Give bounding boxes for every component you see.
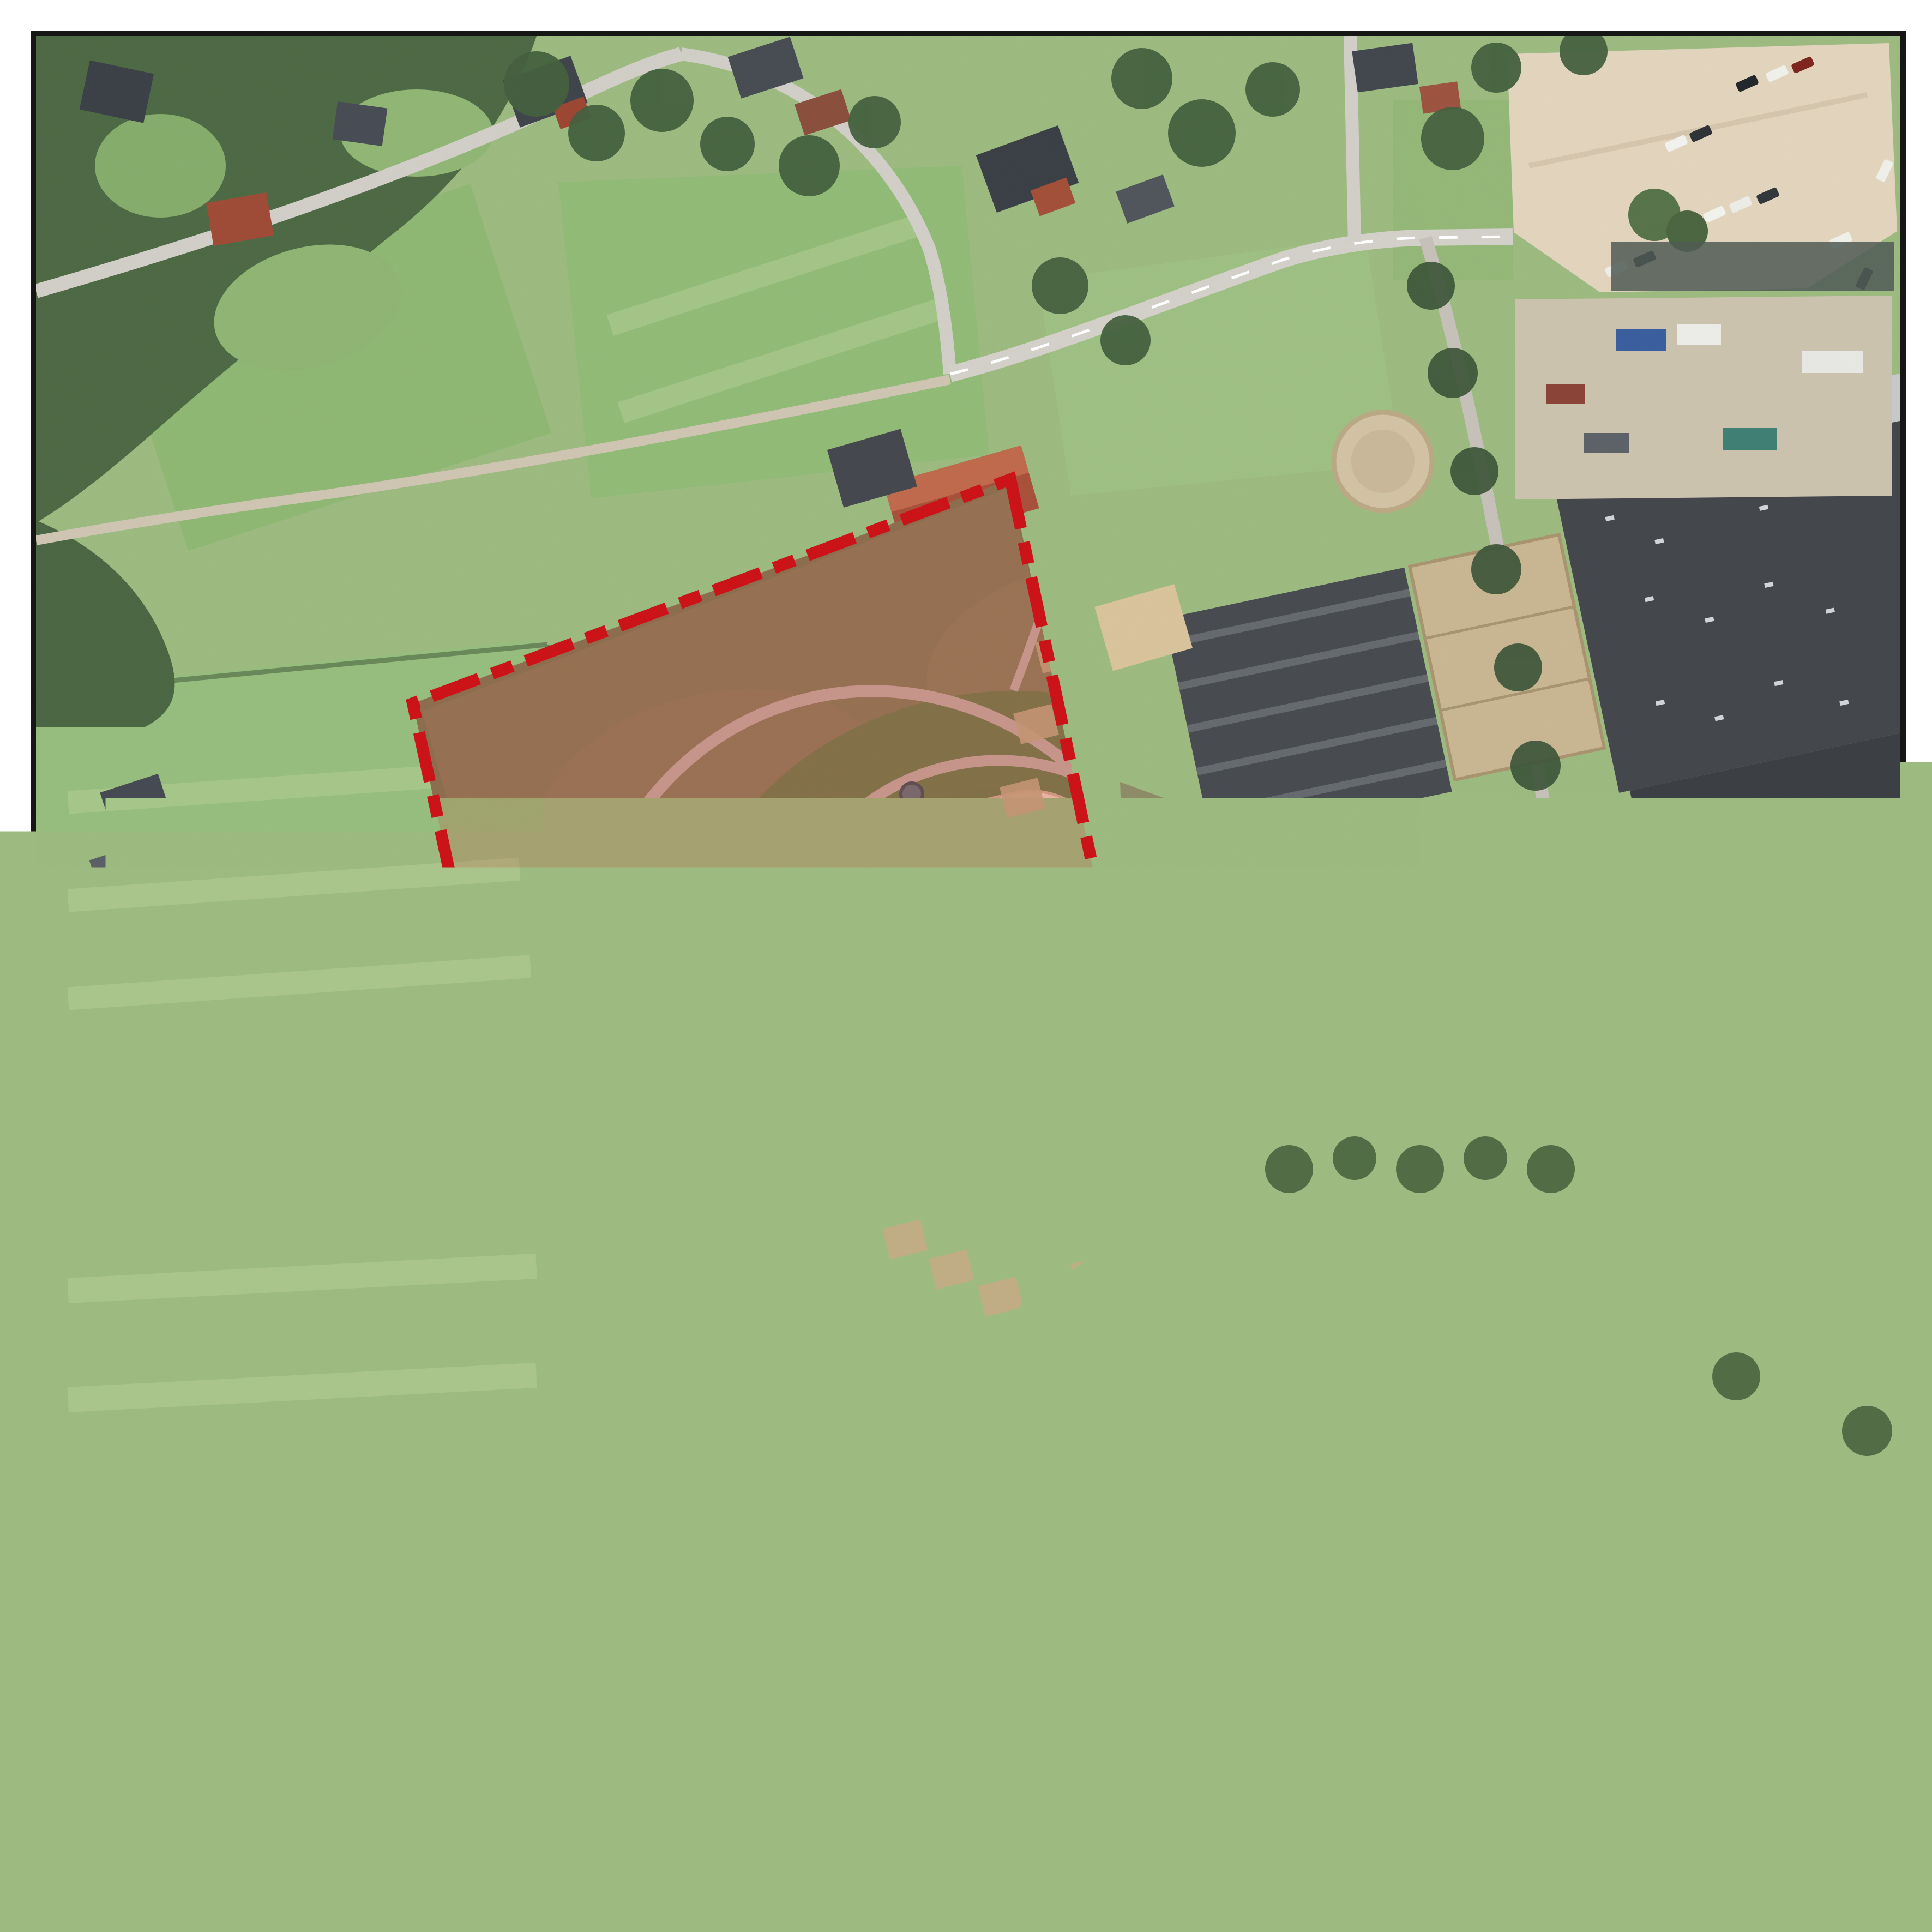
logo-underscore [1754,1820,1824,1833]
scale-label-20: 20 [310,1740,339,1770]
scale-label-60: 60 [475,1740,504,1770]
scale-bar-segment [410,1783,492,1798]
scale-bar-segment [245,1783,327,1798]
scale-bar [243,1781,576,1801]
scale-bar-segment [492,1783,574,1798]
scale-label-80m: 80 m [549,1740,606,1770]
map-frame [31,31,1906,1906]
scale-legend: 0 20 40 60 80 m [80,1717,644,1845]
scale-bar-segment [327,1783,410,1798]
logo-letter: R [1753,1648,1829,1826]
map-screenshot: 0 20 40 60 80 m R [0,0,1932,1932]
aerial-photo [36,36,1900,1900]
map-content [36,36,1900,1900]
logo-r: R [1745,1648,1909,1850]
scale-label-40: 40 [393,1740,422,1770]
scale-tick-labels: 0 20 40 60 80 m [80,1740,644,1773]
scale-label-0: 0 [236,1740,250,1770]
